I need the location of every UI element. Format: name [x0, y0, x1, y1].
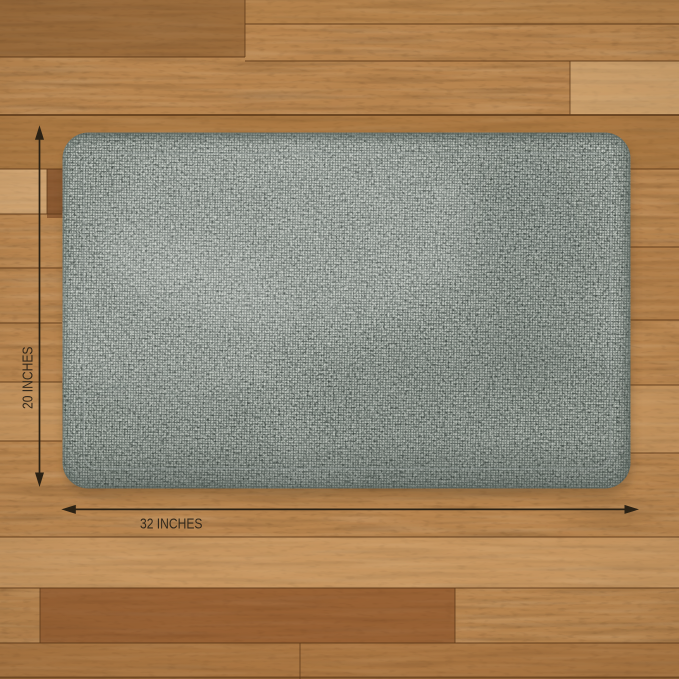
svg-text:32 INCHES: 32 INCHES — [140, 516, 203, 533]
svg-text:20 INCHES: 20 INCHES — [20, 347, 37, 410]
